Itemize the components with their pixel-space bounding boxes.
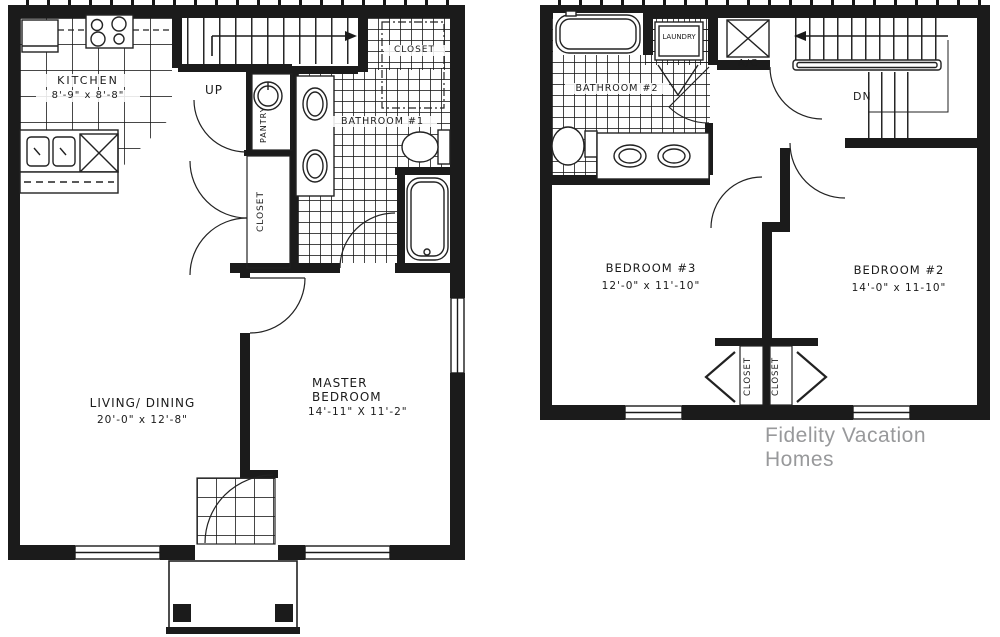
bedroom-closet-left: [706, 346, 763, 405]
pantry-label: PANTRY: [259, 96, 268, 154]
bedroom3-label: BEDROOM #3: [592, 262, 710, 276]
bathroom2-door: [669, 67, 709, 123]
staircase-down-arrow: [794, 31, 948, 41]
toilet-bath1: [402, 130, 450, 164]
hall-closet-double-doors: [190, 161, 247, 275]
bath-closet-label: CLOSET: [384, 45, 445, 56]
bathroom1-door-arc: [340, 213, 395, 268]
bedroom3-dims: 12'-0" x 11'-10": [592, 280, 710, 293]
ac-unit: [727, 20, 769, 57]
kitchen-label: KITCHEN: [38, 74, 138, 87]
entry-door: [197, 475, 275, 544]
kitchen-counter: [20, 172, 118, 193]
walls-first-floor: [8, 5, 465, 560]
living-dining-dims: 20'-0" x 12'-8": [85, 414, 200, 427]
bath1-closet-shelf-outline: [382, 22, 444, 108]
bedroom2-window: [853, 406, 910, 419]
floorplan-linework: [0, 0, 1000, 637]
stairs-down-label: DN: [853, 90, 872, 103]
laundry-label: LAUNDRY: [656, 33, 702, 41]
bedroom-closet-right-label: CLOSET: [771, 349, 781, 403]
bedroom2-label: BEDROOM #2: [840, 264, 958, 278]
floorplan-canvas: KITCHEN 8'-9" x 8'-8" UP PANTRY CLOSET B…: [0, 0, 1000, 637]
pantry-door-arc: [194, 100, 246, 152]
master-bedroom-label: MASTER BEDROOM: [312, 376, 407, 405]
watermark: Fidelity Vacation Homes: [765, 424, 997, 472]
kitchen-sink: [20, 130, 118, 172]
front-window-left: [75, 546, 160, 559]
ac-label: A/C: [727, 58, 769, 70]
master-side-window: [451, 298, 464, 373]
porch: [166, 561, 300, 634]
bedroom3-window: [625, 406, 682, 419]
stair-railing: [793, 60, 941, 70]
toilet-bath2: [552, 127, 597, 165]
master-bedroom-door: [250, 278, 305, 333]
staircase-up-arrow: [212, 31, 357, 56]
hall-closet: [247, 156, 290, 268]
stove: [86, 15, 133, 48]
bedroom-closet-left-label: CLOSET: [743, 349, 753, 403]
bedroom3-door-arc: [711, 177, 762, 228]
vanity-bath2: [597, 133, 709, 179]
stairs-up-label: UP: [205, 83, 223, 97]
master-bedroom-dims: 14'-11" X 11'-2": [308, 406, 408, 419]
bedroom2-dims: 14'-0" x 11-10": [840, 282, 958, 295]
hall-closet-label: CLOSET: [256, 180, 266, 244]
bathroom2-label: BATHROOM #2: [565, 83, 669, 94]
kitchen-dims: 8'-9" x 8'-8": [36, 90, 140, 102]
bedroom2-door-arc: [790, 143, 845, 198]
bathroom1-label: BATHROOM #1: [328, 116, 437, 127]
refrigerator: [22, 20, 58, 52]
living-dining-label: LIVING/ DINING: [85, 396, 200, 410]
bathtub-bath2: [553, 11, 643, 55]
front-window-right: [305, 546, 390, 559]
bathtub-bath1: [405, 175, 450, 263]
stairwell-guide-lines: [868, 40, 948, 112]
ac-closet-door-arc: [770, 67, 822, 119]
vanity-bath1: [296, 76, 334, 196]
